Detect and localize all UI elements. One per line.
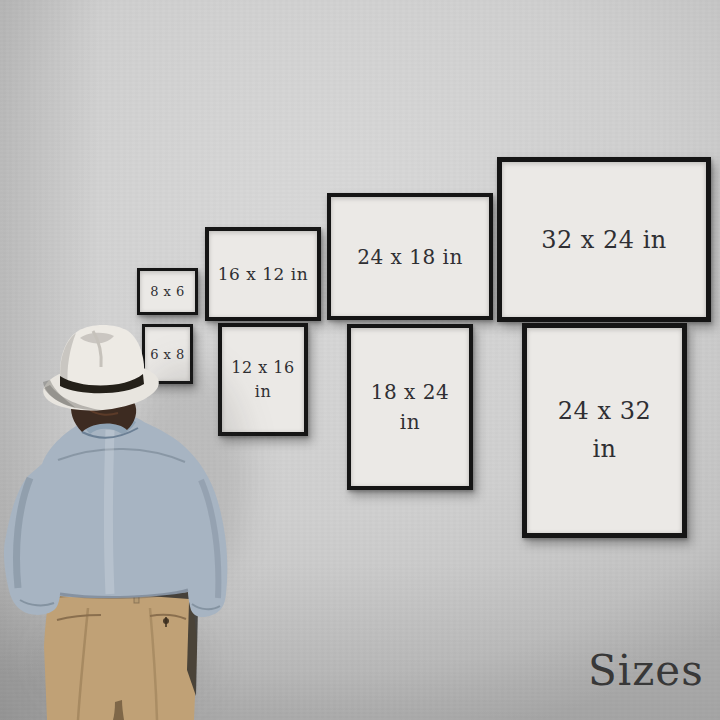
frame-mat: 24 x 18 in	[331, 197, 489, 316]
frame-size-unit: in	[400, 407, 420, 437]
frame-size-label: 24 x 18 in	[357, 245, 463, 269]
frame-mat: 16 x 12 in	[209, 231, 317, 317]
frame-size-label: 18 x 24	[371, 377, 449, 407]
frame-mat: 24 x 32 in	[527, 328, 682, 533]
man-figure	[0, 308, 236, 720]
frame-mat: 32 x 24 in	[502, 162, 706, 317]
blue-shirt	[4, 413, 227, 617]
khaki-trousers	[44, 587, 198, 720]
sizes-caption: Sizes	[588, 650, 704, 692]
frame-size-label: 16 x 12 in	[218, 264, 308, 284]
frame-16x12: 16 x 12 in	[205, 227, 321, 321]
frame-size-label: 24 x 32	[558, 393, 651, 430]
frame-size-label: 32 x 24 in	[541, 226, 667, 254]
frame-18x24: 18 x 24 in	[347, 324, 473, 490]
frame-size-unit: in	[592, 431, 616, 468]
frame-24x18: 24 x 18 in	[327, 193, 493, 320]
frame-mat: 8 x 6	[140, 271, 195, 312]
fedora-hat	[41, 325, 161, 415]
frame-24x32: 24 x 32 in	[522, 323, 687, 538]
frame-size-unit: in	[255, 380, 271, 403]
frame-32x24: 32 x 24 in	[497, 157, 711, 322]
frame-size-label: 12 x 16	[231, 356, 294, 379]
frame-mat: 18 x 24 in	[351, 328, 469, 486]
frame-size-label: 8 x 6	[150, 284, 185, 299]
